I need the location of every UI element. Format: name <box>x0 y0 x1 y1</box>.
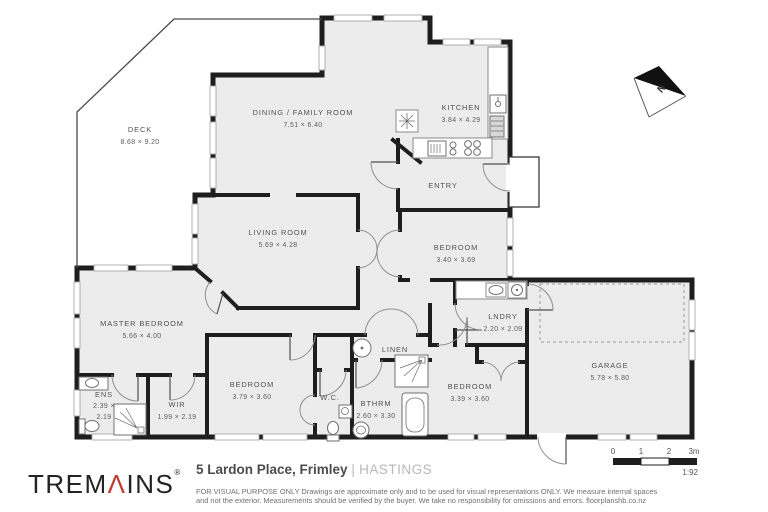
disclaimer-line-1: FOR VISUAL PURPOSE ONLY Drawings are app… <box>196 487 657 496</box>
room-label-deck: DECK 8.68 × 9.20 <box>120 125 159 146</box>
floorplan-page: DECK 8.68 × 9.20 DINING / FAMILY ROOM 7.… <box>0 0 768 512</box>
pedestal-basin-icon <box>353 422 369 438</box>
svg-text:1.99 × 2.19: 1.99 × 2.19 <box>157 414 196 421</box>
svg-text:LINEN: LINEN <box>382 345 408 354</box>
wc-toilet-bowl-icon <box>328 422 339 435</box>
svg-text:ENS: ENS <box>95 390 113 399</box>
svg-text:2.39 ×: 2.39 × <box>93 403 115 410</box>
tremains-logo: TREMΛINS® <box>28 468 180 500</box>
disclaimer-text: FOR VISUAL PURPOSE ONLY Drawings are app… <box>196 487 657 505</box>
svg-text:5.69 × 4.28: 5.69 × 4.28 <box>258 242 297 249</box>
oven-icon <box>490 116 504 137</box>
svg-text:8.68 × 9.20: 8.68 × 9.20 <box>120 139 159 146</box>
logo-accent-a: Λ <box>108 469 127 499</box>
svg-text:BTHRM: BTHRM <box>361 399 392 408</box>
wc-toilet-tank-icon <box>327 435 339 441</box>
room-label-linen: LINEN <box>382 345 408 354</box>
svg-text:5.66 × 4.00: 5.66 × 4.00 <box>122 333 161 340</box>
property-region: HASTINGS <box>359 462 432 477</box>
svg-text:BEDROOM: BEDROOM <box>230 380 275 389</box>
svg-text:KITCHEN: KITCHEN <box>442 103 481 112</box>
svg-text:7.51 × 6.40: 7.51 × 6.40 <box>283 122 322 129</box>
svg-text:1:92: 1:92 <box>682 468 698 477</box>
svg-text:3.79 × 3.60: 3.79 × 3.60 <box>232 394 271 401</box>
svg-text:0: 0 <box>611 447 616 456</box>
svg-text:1: 1 <box>639 447 644 456</box>
svg-text:2: 2 <box>667 447 672 456</box>
svg-text:2.19: 2.19 <box>96 414 111 421</box>
svg-text:WIR: WIR <box>168 400 185 409</box>
svg-text:DECK: DECK <box>128 125 152 134</box>
svg-text:W.C.: W.C. <box>320 393 340 402</box>
svg-text:2.60 × 3.30: 2.60 × 3.30 <box>356 413 395 420</box>
svg-text:MASTER BEDROOM: MASTER BEDROOM <box>100 319 184 328</box>
svg-text:DINING / FAMILY ROOM: DINING / FAMILY ROOM <box>253 108 354 117</box>
garage-door-gap <box>537 433 566 441</box>
floor-plan-drawing: DECK 8.68 × 9.20 DINING / FAMILY ROOM 7.… <box>0 0 768 512</box>
disclaimer-line-2: and not the exterior. Measurements shoul… <box>196 496 657 505</box>
front-door-gap <box>506 163 514 192</box>
toilet-bowl-icon <box>85 421 99 432</box>
svg-text:5.78 × 5.80: 5.78 × 5.80 <box>590 375 629 382</box>
wc-basin-icon <box>339 405 352 418</box>
svg-text:BEDROOM: BEDROOM <box>434 243 479 252</box>
svg-text:3.84 × 4.29: 3.84 × 4.29 <box>441 117 480 124</box>
svg-text:LIVING ROOM: LIVING ROOM <box>248 228 307 237</box>
north-arrow-icon: N <box>634 66 686 117</box>
property-title: 5 Lardon Place, Frimley | HASTINGS <box>196 462 432 477</box>
svg-text:3.39 × 3.60: 3.39 × 3.60 <box>450 396 489 403</box>
svg-text:3m: 3m <box>688 447 699 456</box>
logo-part1: TREM <box>28 469 108 499</box>
property-address: 5 Lardon Place, Frimley <box>196 462 348 477</box>
room-label-entry: ENTRY <box>428 181 457 190</box>
toilet-tank-icon <box>79 419 85 434</box>
hot-water-cylinder-icon <box>353 339 371 357</box>
shower-icon <box>395 355 428 387</box>
title-separator: | <box>351 462 355 477</box>
room-label-wc: W.C. <box>320 393 340 402</box>
svg-text:ENTRY: ENTRY <box>428 181 457 190</box>
scale-bar: 0 1 2 3m 1:92 <box>611 447 700 477</box>
registered-mark: ® <box>174 468 180 477</box>
svg-text:GARAGE: GARAGE <box>591 361 628 370</box>
svg-text:LNDRY: LNDRY <box>488 312 517 321</box>
cooktop-star-icon <box>399 113 415 129</box>
svg-text:BEDROOM: BEDROOM <box>448 382 493 391</box>
logo-part2: INS <box>127 469 175 499</box>
svg-text:3.40 × 3.69: 3.40 × 3.69 <box>436 257 475 264</box>
svg-text:2.20 × 2.09: 2.20 × 2.09 <box>483 326 522 333</box>
laundry-fixtures <box>456 281 527 299</box>
